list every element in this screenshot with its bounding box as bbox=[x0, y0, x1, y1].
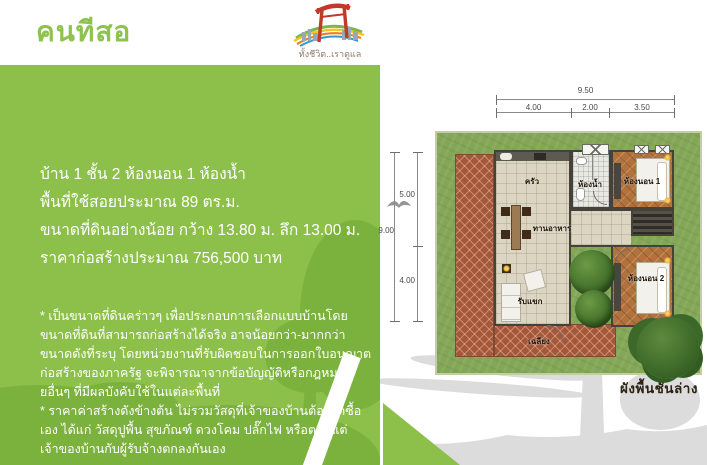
shower-divider bbox=[592, 152, 593, 180]
giant-swing-icon bbox=[288, 2, 372, 48]
room-bedroom2 bbox=[611, 245, 674, 327]
bird-silhouette-icon bbox=[386, 198, 412, 210]
dim-line bbox=[394, 152, 395, 322]
lamp-glow bbox=[664, 154, 671, 161]
room-label-porch: เฉลียง bbox=[514, 335, 564, 348]
dining-chair bbox=[501, 207, 510, 216]
lamp-glow bbox=[664, 310, 671, 317]
logo-slogan: ทั้งชีวิต..เราดูแล bbox=[288, 47, 372, 61]
house-model-title: คนทีสอ bbox=[36, 10, 131, 54]
closet bbox=[631, 209, 674, 236]
bathroom-sink bbox=[576, 157, 587, 165]
floor-plan: ครัว ห้องน้ำ ห้องนอน 1 ทานอาหาร รับแขก ห… bbox=[435, 131, 702, 375]
spec-price: ราคาก่อสร้างประมาณ 756,500 บาท bbox=[40, 245, 372, 273]
wardrobe bbox=[614, 263, 621, 311]
room-label-bathroom: ห้องน้ำ bbox=[569, 178, 611, 191]
kitchen-sink bbox=[500, 153, 512, 160]
bed bbox=[636, 262, 670, 314]
stove bbox=[534, 153, 546, 160]
info-panel: บ้าน 1 ชั้น 2 ห้องนอน 1 ห้องน้ำ พื้นที่ใ… bbox=[0, 65, 380, 465]
dim-top-seg1: 4.00 bbox=[496, 103, 571, 112]
brochure-page: คนทีสอ ทั้งชีวิต..เราดูแล bbox=[0, 0, 707, 465]
bush bbox=[575, 290, 613, 328]
lamp-glow bbox=[664, 197, 671, 204]
lamp-glow bbox=[503, 265, 510, 272]
room-label-kitchen: ครัว bbox=[512, 175, 552, 188]
disclaimer-land: * เป็นขนาดที่ดินคร่าวๆ เพื่อประกอบการเลื… bbox=[40, 307, 374, 402]
garden-tree bbox=[637, 317, 699, 379]
green-wedge-decoration bbox=[383, 403, 460, 465]
spec-area: พื้นที่ใช้สอยประมาณ 89 ตร.ม. bbox=[40, 189, 372, 217]
terrace-left bbox=[455, 154, 494, 357]
lamp-glow bbox=[664, 257, 671, 264]
dining-chair bbox=[522, 207, 531, 216]
room-label-bedroom2: ห้องนอน 2 bbox=[616, 272, 676, 285]
dim-line bbox=[417, 152, 418, 322]
spec-list: บ้าน 1 ชั้น 2 ห้องนอน 1 ห้องน้ำ พื้นที่ใ… bbox=[40, 161, 372, 273]
spec-land-size: ขนาดที่ดินอย่างน้อย กว้าง 13.80 ม. ลึก 1… bbox=[40, 217, 372, 245]
door-arc bbox=[615, 249, 629, 263]
room-label-bedroom1: ห้องนอน 1 bbox=[612, 175, 672, 188]
dining-table bbox=[511, 205, 521, 250]
room-label-living: รับแขก bbox=[505, 295, 555, 308]
window-icon bbox=[582, 144, 609, 155]
dim-top-seg3: 3.50 bbox=[609, 103, 675, 112]
bma-logo: ทั้งชีวิต..เราดูแล bbox=[288, 2, 372, 64]
armchair bbox=[523, 269, 546, 292]
dim-left-seg2: 4.00 bbox=[397, 276, 415, 285]
dim-top-total: 9.50 bbox=[496, 86, 675, 95]
plan-caption: ผังพื้นชั้นล่าง bbox=[620, 377, 698, 399]
window-icon bbox=[655, 145, 670, 154]
dim-top-seg2: 2.00 bbox=[571, 103, 609, 112]
dining-chair bbox=[501, 230, 510, 239]
dim-line bbox=[496, 112, 675, 113]
room-label-dining: ทานอาหาร bbox=[522, 222, 582, 235]
dim-line bbox=[496, 99, 675, 100]
dim-left-seg1: 5.00 bbox=[397, 190, 415, 199]
dim-left-total: 9.00 bbox=[376, 226, 394, 235]
spec-rooms: บ้าน 1 ชั้น 2 ห้องนอน 1 ห้องน้ำ bbox=[40, 161, 372, 189]
door-arc bbox=[593, 191, 607, 205]
window-icon bbox=[634, 145, 649, 154]
